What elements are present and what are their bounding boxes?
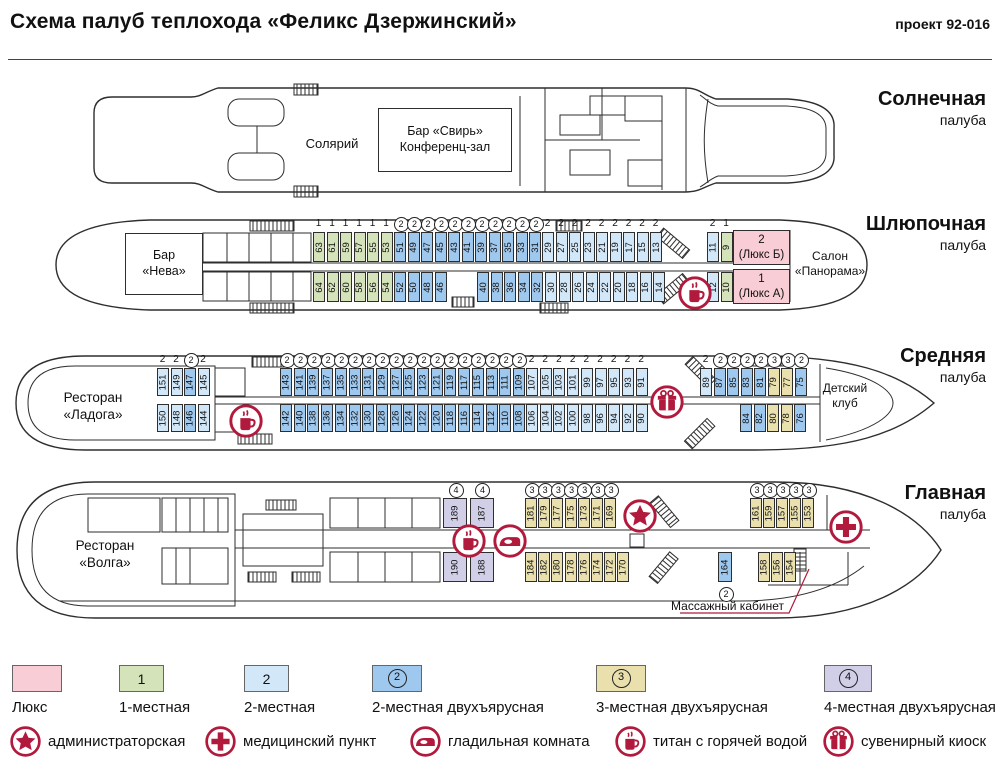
deck-name-middle: Средняяпалуба	[900, 345, 986, 385]
cabin-number: 124	[404, 410, 415, 426]
cabin-lux-a: 1 (Люкс А)	[733, 269, 790, 304]
gift-icon	[823, 726, 854, 762]
cabin-128: 128	[376, 404, 388, 432]
cabin-number: 91	[636, 377, 647, 388]
cabin-100: 100	[567, 404, 579, 432]
cabin-number: 148	[171, 410, 182, 426]
cabin-131: 131	[362, 368, 374, 396]
cabin-171: 171	[591, 498, 603, 528]
cabin-56: 56	[367, 272, 379, 302]
cabin-99: 99	[581, 368, 593, 396]
cabin-type-mark: 2	[594, 353, 606, 366]
cabin-number: 28	[559, 282, 570, 293]
cabin-173: 173	[578, 498, 590, 528]
cabin-number: 11	[708, 242, 719, 252]
cabin-number: 81	[755, 377, 766, 388]
cabin-36: 36	[504, 272, 516, 302]
cabin-number: 32	[532, 282, 543, 293]
cabin-type-mark: 1	[326, 217, 338, 230]
cabin-50: 50	[408, 272, 420, 302]
cabin-number: 184	[526, 559, 537, 575]
cabin-number: 80	[768, 413, 779, 424]
cabin-number: 14	[654, 282, 665, 293]
cabin-number: 175	[565, 505, 576, 521]
cabin-number: 56	[368, 282, 379, 293]
cabin-number: 179	[539, 505, 550, 521]
restaurant-volga-label: Ресторан «Волга»	[40, 538, 170, 572]
cabin-number: 120	[431, 410, 442, 426]
cabin-95: 95	[608, 368, 620, 396]
cabin-126: 126	[390, 404, 402, 432]
cabin-84: 84	[740, 404, 752, 432]
cabin-number: 146	[185, 410, 196, 426]
cabin-type-mark: 2	[740, 353, 755, 368]
cabin-number: 187	[476, 505, 487, 521]
legend-swatch-double2: 2	[372, 665, 422, 692]
cabin-49: 49	[408, 232, 420, 262]
deck-name-sub: палуба	[905, 506, 986, 522]
cabin-number: 107	[527, 374, 538, 390]
medical-icon	[205, 726, 236, 762]
cabin-number: 40	[478, 282, 489, 293]
cabin-number: 150	[158, 410, 169, 426]
cabin-type-mark: 2	[348, 353, 363, 368]
cabin-number: 83	[741, 377, 752, 388]
cabin-number: 181	[526, 505, 537, 521]
deck-name-sun: Солнечнаяпалуба	[878, 88, 986, 128]
cabin-number: 20	[613, 282, 624, 293]
cabin-number: 164	[720, 559, 731, 575]
cabin-77: 77	[781, 368, 793, 396]
cabin-48: 48	[421, 272, 433, 302]
cabin-24: 24	[586, 272, 598, 302]
cabin-number: 99	[581, 377, 592, 388]
cabin-124: 124	[403, 404, 415, 432]
cabin-number: 132	[349, 410, 360, 426]
iron-icon	[493, 524, 527, 563]
cabin-number: 9	[721, 244, 732, 249]
cabin-83: 83	[741, 368, 753, 396]
cabin-22: 22	[599, 272, 611, 302]
cabin-55: 55	[367, 232, 379, 262]
cabin-number: 46	[435, 282, 446, 293]
cabin-number: 139	[308, 374, 319, 390]
hot-water-icon	[678, 276, 712, 315]
cabin-number: 147	[185, 374, 196, 390]
cabin-number: 76	[795, 413, 806, 424]
cabin-number: 87	[714, 377, 725, 388]
cabin-170: 170	[617, 552, 629, 582]
cabin-type-mark: 2	[307, 353, 322, 368]
cabin-number: 118	[445, 410, 456, 425]
legend-label-triple2: 3-местная двухъярусная	[596, 699, 768, 716]
cabin-91: 91	[636, 368, 648, 396]
cabin-110: 110	[499, 404, 511, 432]
cabin-133: 133	[349, 368, 361, 396]
cabin-90: 90	[636, 404, 648, 432]
cabin-123: 123	[417, 368, 429, 396]
cabin-type-mark: 2	[485, 353, 500, 368]
cabin-19: 19	[610, 232, 622, 262]
cabin-number: 108	[513, 410, 524, 426]
legend-swatch-lux	[12, 665, 62, 692]
cabin-number: 103	[554, 374, 565, 390]
cabin-145: 145	[198, 368, 210, 396]
cabin-20: 20	[613, 272, 625, 302]
cabin-117: 117	[458, 368, 470, 396]
cabin-87: 87	[714, 368, 726, 396]
cabin-158: 158	[758, 552, 770, 582]
cabin-number: 138	[308, 410, 319, 426]
cabin-number: 123	[418, 374, 429, 390]
cabin-155: 155	[789, 498, 801, 528]
cabin-number: 96	[595, 413, 606, 424]
cabin-type-mark: 2	[539, 353, 551, 366]
cabin-number: 90	[636, 413, 647, 424]
cabin-15: 15	[637, 232, 649, 262]
cabin-number: 57	[354, 242, 365, 253]
cabin-type-mark: 2	[170, 353, 182, 366]
cabin-number: 155	[790, 505, 801, 521]
room-bar-neva: Бар «Нева»	[125, 233, 203, 295]
cabin-type-mark: 2	[700, 353, 712, 366]
star-icon	[623, 499, 657, 538]
legend-swatch-single: 1	[119, 665, 164, 692]
legend-badge: 1	[138, 671, 146, 687]
cabin-64: 64	[313, 272, 325, 302]
cabin-type-mark: 3	[604, 483, 619, 498]
cabin-number: 125	[404, 374, 415, 390]
cabin-94: 94	[608, 404, 620, 432]
cabin-number: 89	[701, 377, 712, 388]
cabin-type-mark: 2	[157, 353, 169, 366]
cabin-number: 17	[624, 242, 635, 253]
cabin-number: 113	[486, 374, 497, 389]
cabin-number: 174	[592, 559, 603, 575]
cabin-129: 129	[376, 368, 388, 396]
cabin-number: 51	[395, 242, 406, 253]
cabin-number: 29	[543, 242, 554, 253]
cabin-number: 172	[605, 559, 616, 575]
cabin-134: 134	[335, 404, 347, 432]
cabin-number: 25	[570, 242, 581, 253]
cabin-115: 115	[472, 368, 484, 396]
cabin-174: 174	[591, 552, 603, 582]
cabin-17: 17	[623, 232, 635, 262]
cabin-119: 119	[444, 368, 456, 396]
cabin-number: 176	[578, 559, 589, 575]
cabin-number: 16	[640, 282, 651, 293]
cabin-number: 109	[513, 374, 524, 390]
cabin-number: 154	[785, 559, 796, 575]
deck-name-sub: палуба	[878, 112, 986, 128]
cabin-number: 111	[500, 375, 511, 389]
legend-badge: 2	[388, 669, 407, 688]
cabin-number: 133	[349, 374, 360, 390]
cabin-130: 130	[362, 404, 374, 432]
cabin-number: 171	[592, 505, 603, 521]
cabin-number: 173	[578, 505, 589, 521]
cabin-type-mark: 2	[707, 217, 719, 230]
cabin-177: 177	[551, 498, 563, 528]
cabin-number: 59	[341, 242, 352, 253]
cabin-21: 21	[596, 232, 608, 262]
cabin-number: 131	[363, 374, 374, 390]
cabin-107: 107	[526, 368, 538, 396]
cabin-53: 53	[381, 232, 393, 262]
cabin-122: 122	[417, 404, 429, 432]
cabin-31: 31	[529, 232, 541, 262]
cabin-59: 59	[340, 232, 352, 262]
cabin-type-mark: 2	[434, 217, 449, 232]
cabin-type-mark: 2	[403, 353, 418, 368]
cabin-type-mark: 2	[582, 217, 594, 230]
legend-label-lux: Люкс	[12, 699, 47, 716]
cabin-type-mark: 2	[623, 217, 635, 230]
cabin-type-mark: 2	[569, 217, 581, 230]
cabin-type-mark: 1	[353, 217, 365, 230]
cabin-type-mark: 2	[488, 217, 503, 232]
cabin-number: 101	[568, 374, 579, 390]
cabin-150: 150	[157, 404, 169, 432]
deck-name-sub: палуба	[866, 237, 986, 253]
cabin-103: 103	[553, 368, 565, 396]
cabin-169: 169	[604, 498, 616, 528]
cabin-132: 132	[349, 404, 361, 432]
cabin-number: 169	[605, 505, 616, 521]
cabin-number: 122	[418, 410, 429, 426]
cabin-type-mark: 3	[802, 483, 817, 498]
cabin-number: 77	[782, 377, 793, 388]
cabin-112: 112	[486, 404, 498, 432]
cabin-number: 141	[294, 374, 305, 390]
cabin-125: 125	[403, 368, 415, 396]
cabin-number: 161	[751, 505, 762, 521]
cabin-135: 135	[335, 368, 347, 396]
deck-name-text: Главная	[905, 482, 986, 505]
cabin-27: 27	[556, 232, 568, 262]
cabin-number: 33	[516, 242, 527, 253]
cabin-number: 58	[354, 282, 365, 293]
cabin-number: 55	[368, 242, 379, 253]
cabin-lux-b: 2 (Люкс Б)	[733, 230, 790, 265]
cabin-number: 63	[314, 242, 325, 253]
cabin-number: 95	[609, 377, 620, 388]
cabin-121: 121	[431, 368, 443, 396]
cabin-number: 130	[363, 410, 374, 426]
cabin-type-mark: 2	[461, 217, 476, 232]
cabin-number: 64	[314, 282, 325, 293]
cabin-106: 106	[526, 404, 538, 432]
cabin-number: 37	[489, 242, 500, 253]
cabin-number: 151	[158, 374, 169, 390]
deck-name-text: Средняя	[900, 345, 986, 368]
cabin-29: 29	[542, 232, 554, 262]
cabin-type-mark: 2	[389, 353, 404, 368]
cabin-number: 170	[618, 559, 629, 575]
cabin-number: 98	[581, 413, 592, 424]
cabin-127: 127	[390, 368, 402, 396]
cabin-148: 148	[171, 404, 183, 432]
cabin-number: 102	[554, 410, 565, 426]
cabin-number: 30	[546, 282, 557, 293]
cabin-number: 47	[422, 242, 433, 253]
cabin-30: 30	[545, 272, 557, 302]
cabin-40: 40	[477, 272, 489, 302]
cabin-47: 47	[421, 232, 433, 262]
cabin-118: 118	[444, 404, 456, 432]
cabin-number: 115	[472, 374, 483, 389]
cabin-type-mark: 1	[720, 217, 732, 230]
cabin-101: 101	[567, 368, 579, 396]
cabin-number: 54	[381, 282, 392, 293]
cabin-number: 136	[322, 410, 333, 426]
deck-name-sub: палуба	[900, 369, 986, 385]
cabin-number: 62	[327, 282, 338, 293]
cabin-number: 144	[198, 410, 209, 426]
cabin-23: 23	[583, 232, 595, 262]
cabin-number: 10	[721, 282, 732, 293]
cabin-type-mark: 4	[475, 483, 490, 498]
cabin-number: 48	[422, 282, 433, 293]
cabin-108: 108	[513, 404, 525, 432]
cabin-number: 13	[651, 242, 662, 253]
legend-icon-label: титан с горячей водой	[653, 733, 807, 750]
cabin-98: 98	[581, 404, 593, 432]
cabin-81: 81	[754, 368, 766, 396]
cabin-number: 105	[540, 374, 551, 390]
cabin-type-mark: 1	[340, 217, 352, 230]
cabin-number: 52	[395, 282, 406, 293]
cabin-type-mark: 2	[635, 353, 647, 366]
cabin-number: 153	[803, 505, 814, 521]
cabin-type-mark: 2	[542, 217, 554, 230]
cabin-number: 27	[556, 242, 567, 253]
cabin-57: 57	[354, 232, 366, 262]
cabin-number: 159	[764, 505, 775, 521]
cabin-146: 146	[184, 404, 196, 432]
legend-swatch-quad2: 4	[824, 665, 872, 692]
cabin-number: 38	[491, 282, 502, 293]
cabin-number: 24	[586, 282, 597, 293]
deck-name-main: Главнаяпалуба	[905, 482, 986, 522]
cabin-92: 92	[622, 404, 634, 432]
cabin-154: 154	[784, 552, 796, 582]
cabin-number: 178	[565, 559, 576, 575]
cabin-number: 149	[171, 374, 182, 390]
legend-icon-label: медицинский пункт	[243, 733, 376, 750]
cabin-102: 102	[553, 404, 565, 432]
cabin-type-mark: 2	[407, 217, 422, 232]
cabin-62: 62	[327, 272, 339, 302]
cabin-58: 58	[354, 272, 366, 302]
cabin-type-mark: 2	[515, 217, 530, 232]
cabin-number: 112	[486, 410, 497, 425]
legend-label-double: 2-местная	[244, 699, 315, 716]
cabin-number: 78	[781, 413, 792, 424]
cabin-number: 116	[459, 410, 470, 425]
cabin-139: 139	[307, 368, 319, 396]
cabin-type-mark: 2	[636, 217, 648, 230]
cabin-32: 32	[531, 272, 543, 302]
cabin-number: 129	[376, 374, 387, 390]
cabin-type-mark: 2	[197, 353, 209, 366]
cabin-80: 80	[767, 404, 779, 432]
cabin-number: 97	[595, 377, 606, 388]
cabin-type-mark: 2	[526, 353, 538, 366]
cabin-number: 53	[381, 242, 392, 253]
cabin-number: 93	[622, 377, 633, 388]
cabin-number: 36	[505, 282, 516, 293]
cabin-number: 19	[610, 242, 621, 253]
cabin-number: 180	[552, 559, 563, 575]
cabin-number: 126	[390, 410, 401, 426]
cabin-97: 97	[595, 368, 607, 396]
cabin-number: 15	[637, 242, 648, 253]
cabin-151: 151	[157, 368, 169, 396]
cabin-179: 179	[538, 498, 550, 528]
cabin-number: 61	[327, 242, 338, 253]
cabin-35: 35	[502, 232, 514, 262]
legend-label-double2: 2-местная двухъярусная	[372, 699, 544, 716]
cabin-180: 180	[551, 552, 563, 582]
legend-badge: 4	[839, 669, 858, 688]
cabin-type-mark: 1	[367, 217, 379, 230]
cabin-number: 137	[322, 374, 333, 390]
cabin-109: 109	[513, 368, 525, 396]
cabin-number: 140	[294, 410, 305, 426]
cabin-number: 41	[462, 242, 473, 253]
cabin-type-mark: 1	[380, 217, 392, 230]
cabin-172: 172	[604, 552, 616, 582]
cabin-46: 46	[435, 272, 447, 302]
cabin-28: 28	[559, 272, 571, 302]
cabin-number: 110	[500, 410, 511, 425]
cabin-type-mark: 2	[794, 353, 809, 368]
cabin-11: 11	[707, 232, 719, 262]
cabin-113: 113	[486, 368, 498, 396]
cabin-37: 37	[489, 232, 501, 262]
cabin-34: 34	[518, 272, 530, 302]
cabin-number: 157	[777, 505, 788, 521]
cabin-18: 18	[626, 272, 638, 302]
cabin-number: 31	[530, 242, 541, 253]
cabin-116: 116	[458, 404, 470, 432]
cabin-number: 26	[573, 282, 584, 293]
cabin-52: 52	[394, 272, 406, 302]
cabin-33: 33	[516, 232, 528, 262]
restaurant-ladoga-label: Ресторан «Ладога»	[28, 390, 158, 424]
cabin-number: 119	[445, 374, 456, 389]
deck-name-boat: Шлюпочнаяпалуба	[866, 213, 986, 253]
cabin-149: 149	[171, 368, 183, 396]
cabin-175: 175	[565, 498, 577, 528]
legend-label-single: 1-местная	[119, 699, 190, 716]
cabin-number: 34	[518, 282, 529, 293]
cabin-159: 159	[763, 498, 775, 528]
hot-water-icon	[615, 726, 646, 762]
legend-badge: 2	[263, 671, 271, 687]
cabin-13: 13	[650, 232, 662, 262]
cabin-type-mark: 1	[313, 217, 325, 230]
cabin-60: 60	[340, 272, 352, 302]
gift-icon	[650, 385, 684, 424]
cabin-number: 22	[600, 282, 611, 293]
cabin-176: 176	[578, 552, 590, 582]
cabin-number: 182	[539, 559, 550, 575]
salon-panorama-label: Салон «Панорама»	[790, 249, 870, 279]
cabin-41: 41	[462, 232, 474, 262]
